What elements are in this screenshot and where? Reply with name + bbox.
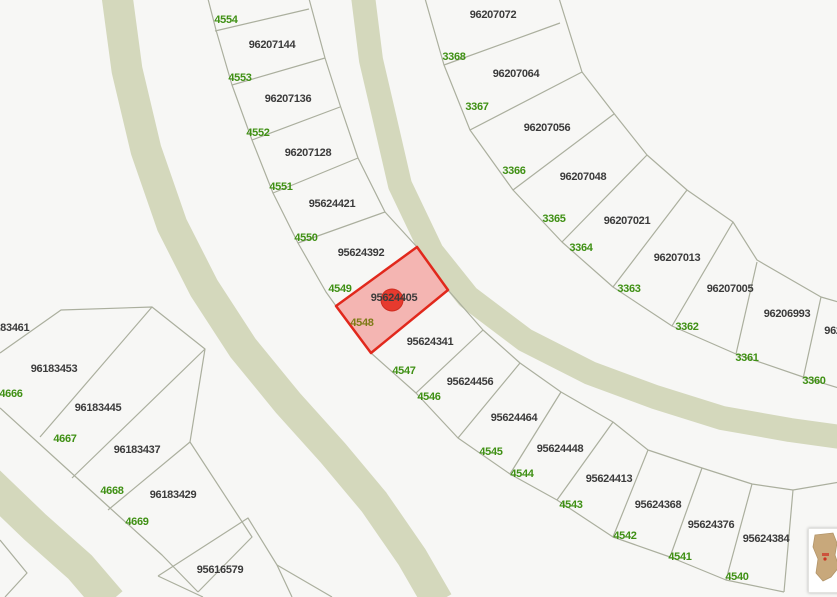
thumbnail-red-mark [822,553,829,556]
preview-thumbnail[interactable] [808,528,837,593]
parcel-map[interactable]: 9620714496207136962071289562442195624392… [0,0,837,597]
selected-parcel-marker [381,289,403,311]
plat-document-shape [813,533,837,581]
thumbnail-image [809,529,837,592]
thumbnail-red-dot [823,557,826,560]
parcel-map-canvas [0,0,837,597]
